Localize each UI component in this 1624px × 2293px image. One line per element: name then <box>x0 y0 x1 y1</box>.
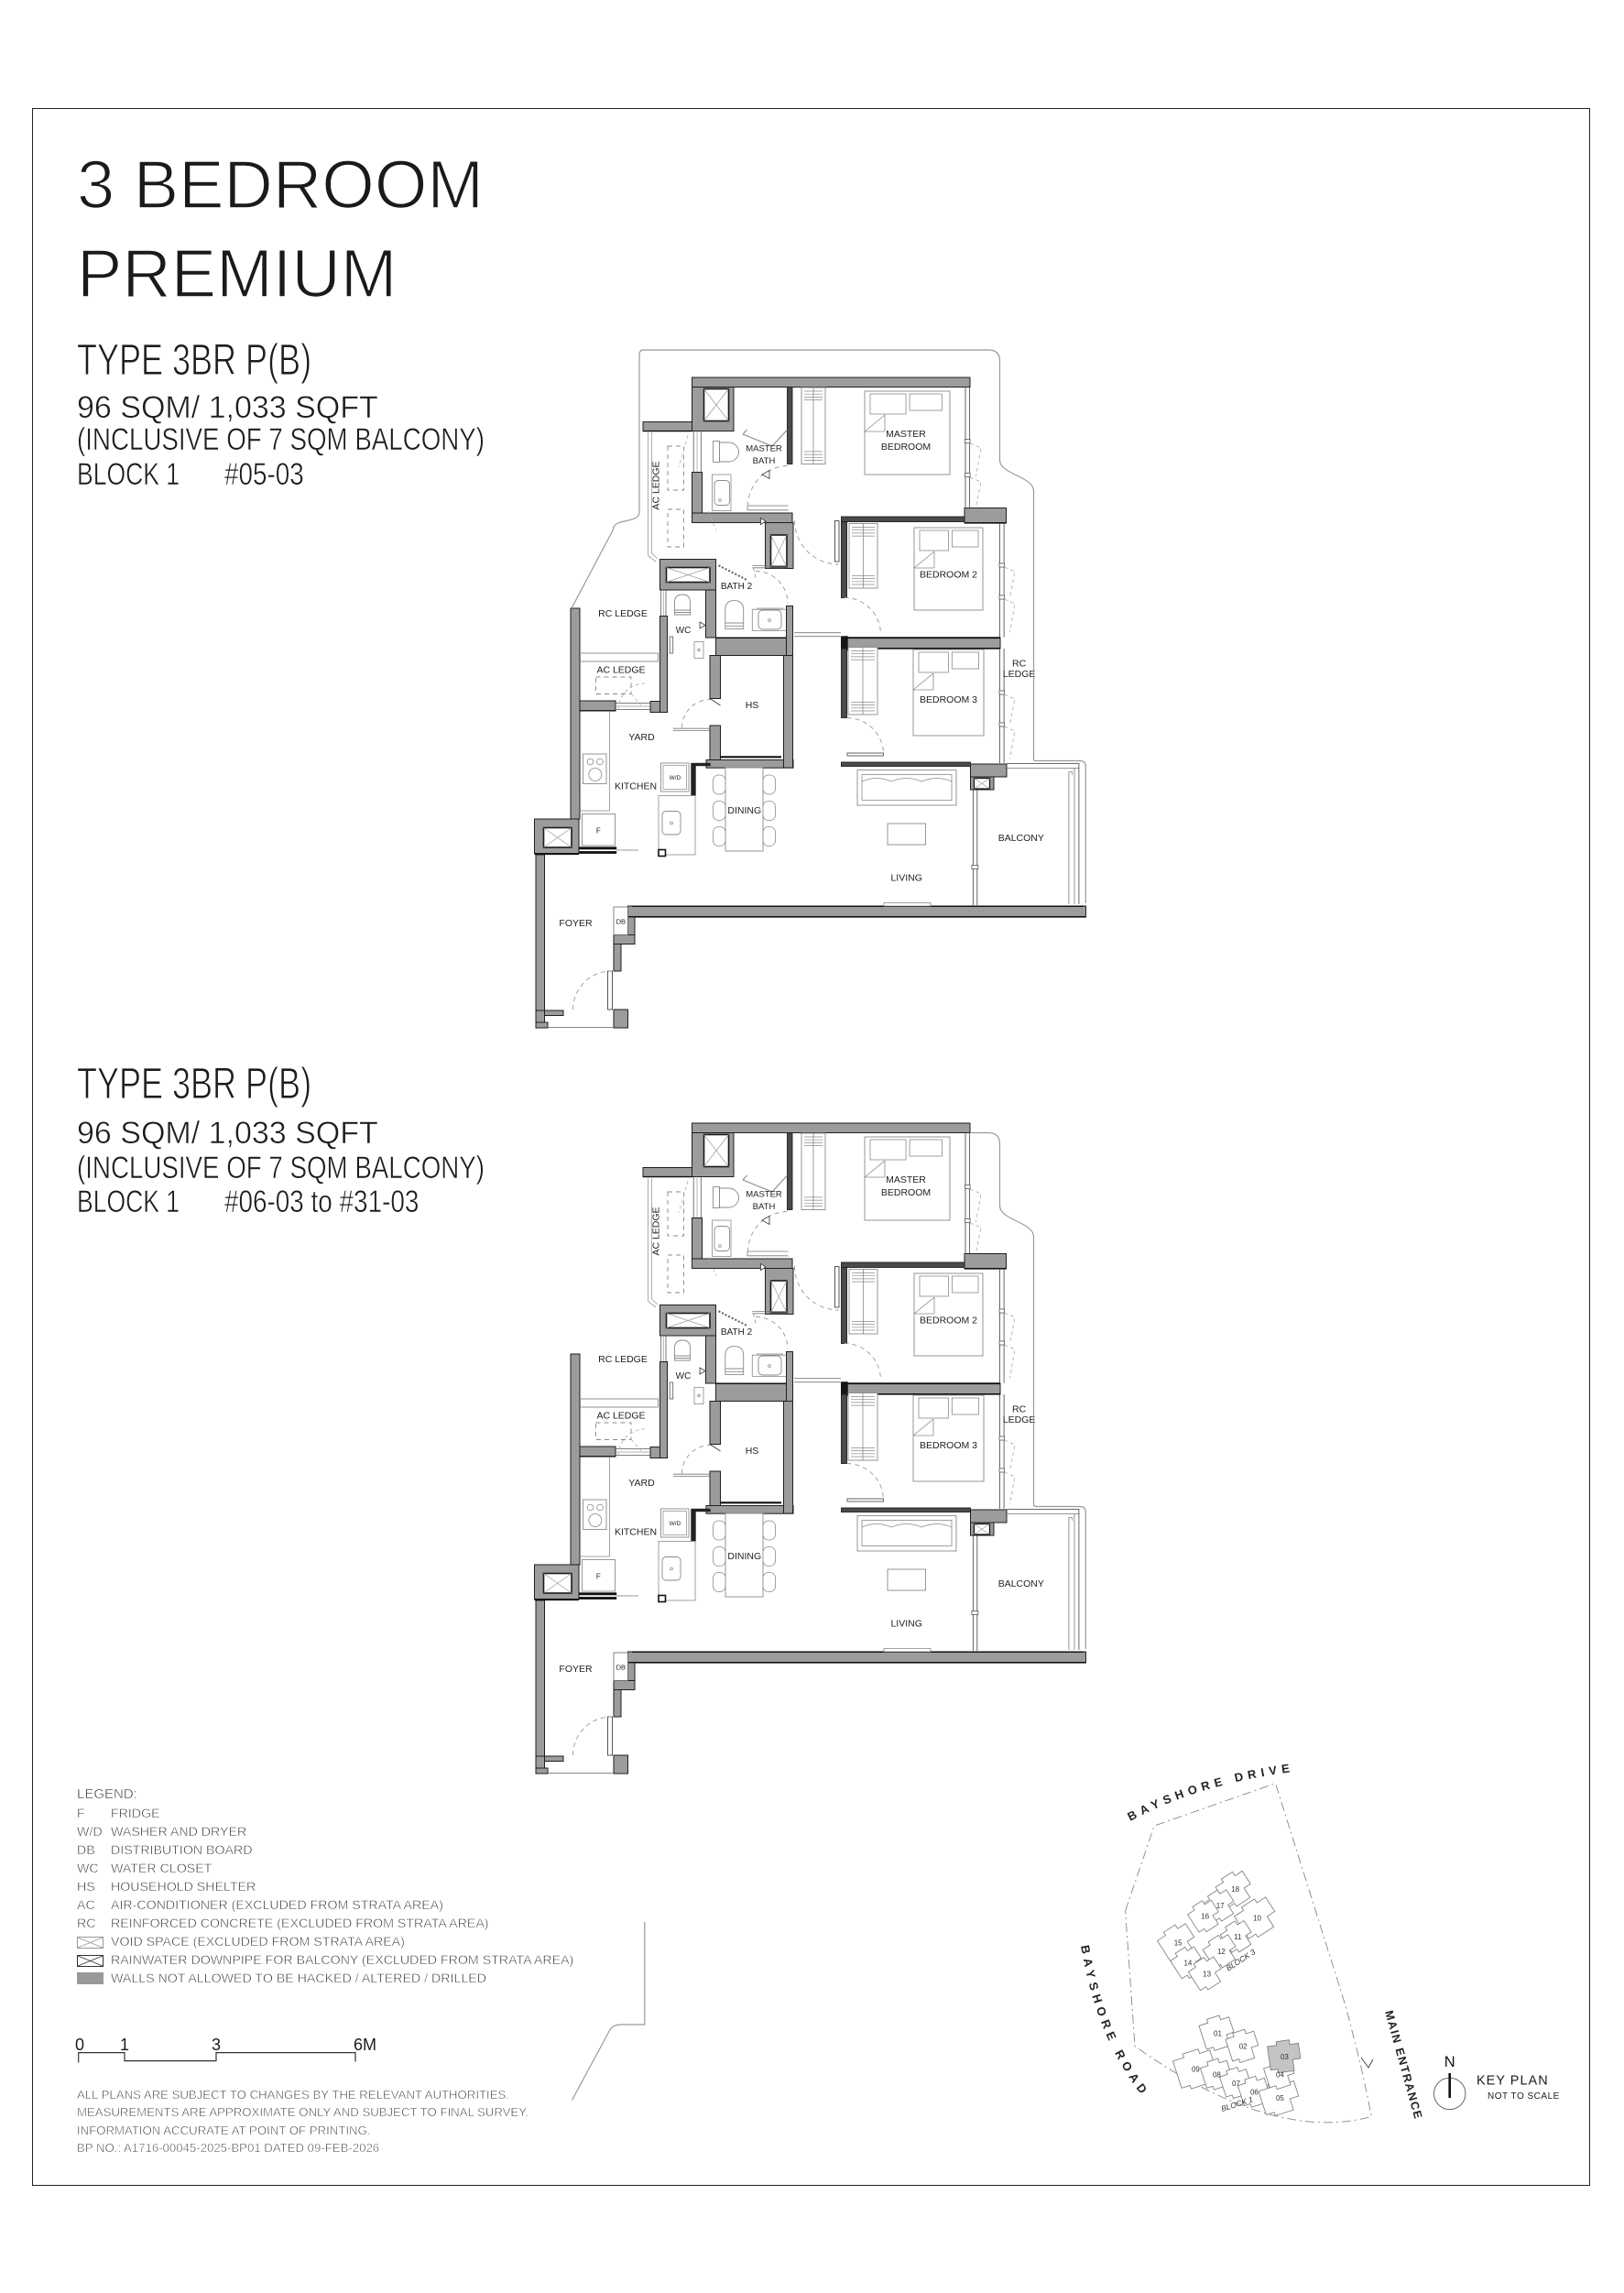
svg-text:3: 3 <box>212 2036 221 2054</box>
svg-text:6M: 6M <box>354 2036 376 2054</box>
svg-text:08: 08 <box>1213 2070 1221 2079</box>
svg-text:BAYSHORE ROAD: BAYSHORE ROAD <box>1078 1944 1153 2100</box>
svg-text:03: 03 <box>1281 2053 1289 2061</box>
svg-text:14: 14 <box>1183 1959 1192 1967</box>
svg-text:12: 12 <box>1217 1948 1226 1956</box>
svg-text:10: 10 <box>1253 1915 1261 1923</box>
svg-text:NOT TO SCALE: NOT TO SCALE <box>1488 2091 1560 2102</box>
svg-text:KEY PLAN: KEY PLAN <box>1477 2074 1549 2089</box>
svg-text:16: 16 <box>1201 1913 1209 1921</box>
svg-text:02: 02 <box>1239 2043 1248 2051</box>
svg-text:N: N <box>1444 2054 1455 2070</box>
svg-text:05: 05 <box>1276 2094 1284 2102</box>
svg-text:MAIN ENTRANCE: MAIN ENTRANCE <box>1382 2009 1424 2121</box>
svg-text:13: 13 <box>1203 1970 1211 1978</box>
svg-text:0: 0 <box>75 2036 84 2054</box>
svg-text:18: 18 <box>1231 1885 1239 1894</box>
svg-text:04: 04 <box>1276 2070 1284 2079</box>
svg-text:11: 11 <box>1234 1933 1242 1941</box>
svg-text:15: 15 <box>1174 1939 1183 1948</box>
svg-text:09: 09 <box>1192 2066 1200 2074</box>
svg-text:07: 07 <box>1232 2080 1240 2088</box>
svg-text:06: 06 <box>1250 2089 1259 2097</box>
svg-text:01: 01 <box>1214 2029 1222 2037</box>
svg-text:BAYSHORE DRIVE: BAYSHORE DRIVE <box>1125 1761 1295 1824</box>
svg-text:1: 1 <box>120 2036 129 2054</box>
svg-text:17: 17 <box>1216 1902 1225 1910</box>
